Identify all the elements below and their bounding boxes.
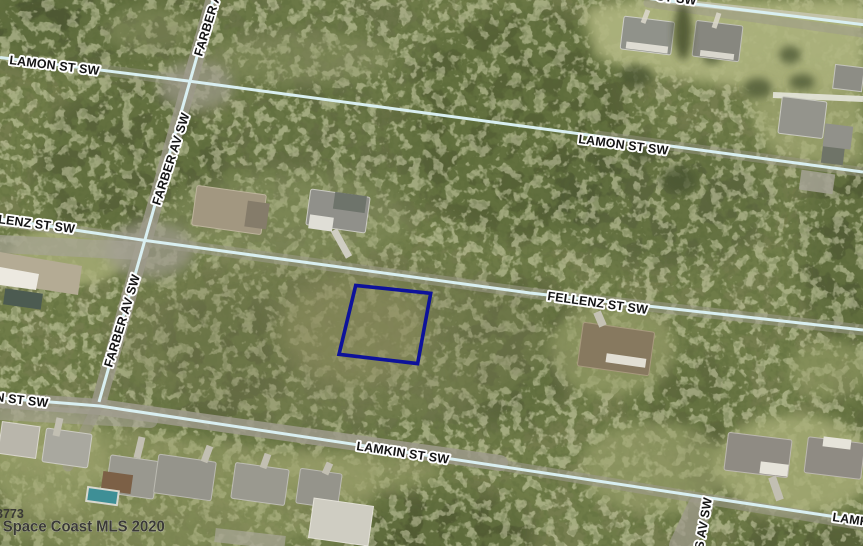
svg-text:Space Coast MLS 2020: Space Coast MLS 2020 xyxy=(3,518,165,536)
